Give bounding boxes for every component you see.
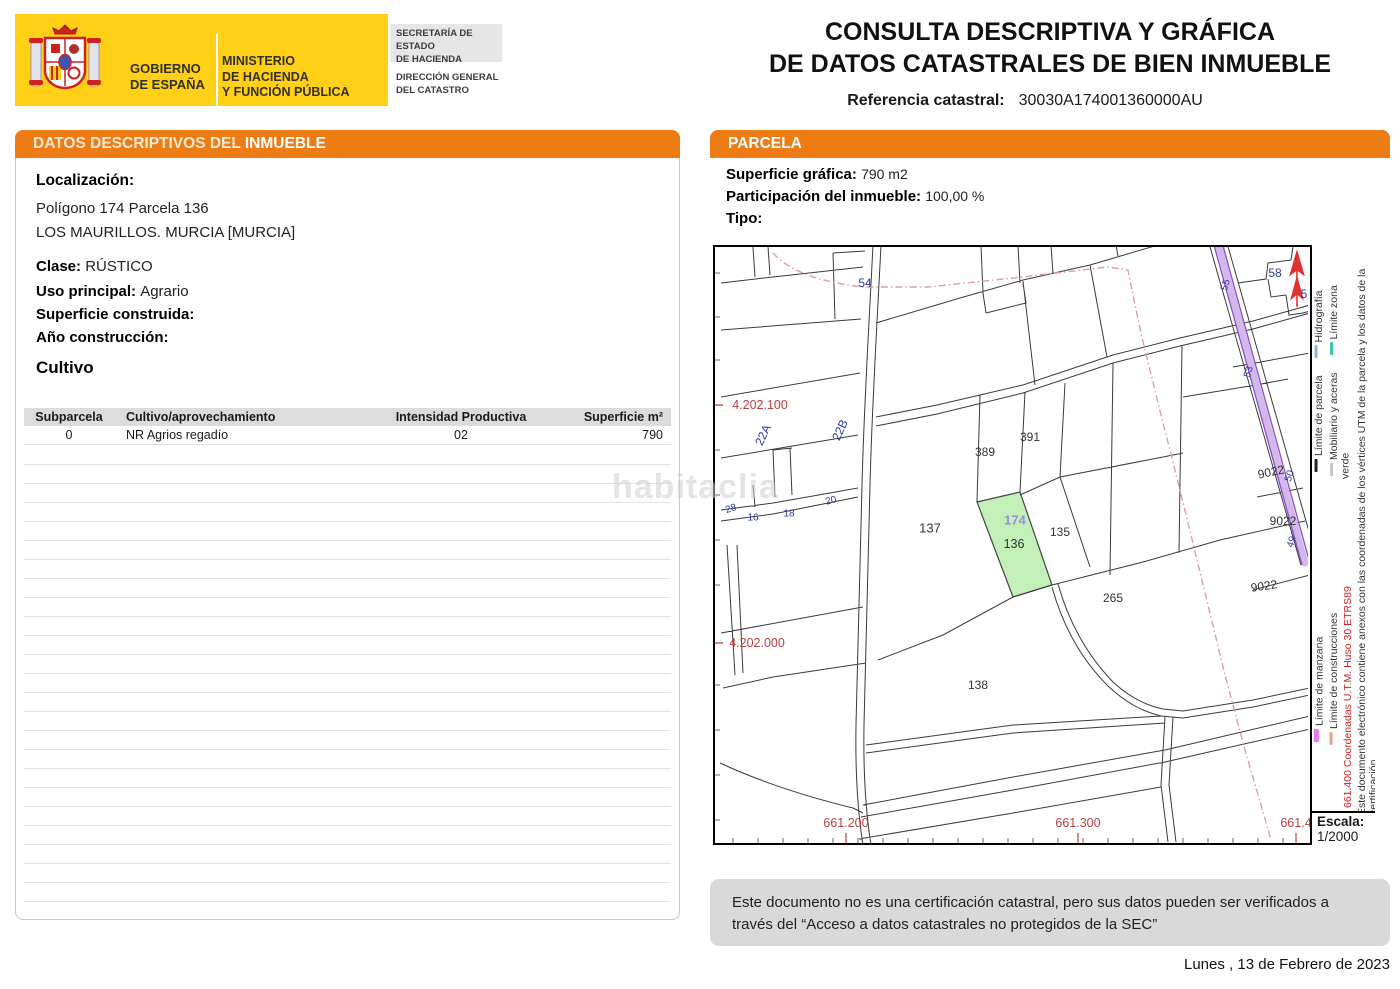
parcel-label-137: 137 bbox=[919, 521, 941, 536]
legend-mobiliario-zonaverde: Mobiliario y acerasLímite zona verde bbox=[1329, 259, 1352, 479]
parcel-label-58: 58 bbox=[1268, 266, 1281, 280]
table-row: 0 NR Agrios regadío 02 790 bbox=[24, 426, 671, 445]
cultivo-title: Cultivo bbox=[36, 358, 94, 378]
cell-cultivo: NR Agrios regadío bbox=[114, 426, 366, 444]
cadastral-map: 54 4.202.100 4.202.000 661.200 661.300 6… bbox=[713, 245, 1375, 845]
uso-field: Uso principal: Agrario bbox=[36, 283, 189, 300]
scale-box: Escala: 1/2000 bbox=[1312, 811, 1375, 845]
inmueble-header-bold: INMUEBLE bbox=[245, 135, 326, 152]
zona-verde-swatch-icon bbox=[1330, 342, 1333, 355]
cultivo-table-header: Subparcela Cultivo/aprovechamiento Inten… bbox=[24, 408, 671, 426]
coord-label-4202000: 4.202.000 bbox=[729, 636, 785, 650]
direccion-text: DIRECCIÓN GENERAL DEL CATASTRO bbox=[396, 72, 506, 98]
cell-intensidad: 02 bbox=[366, 426, 556, 444]
spain-coat-of-arms-icon bbox=[27, 22, 103, 98]
cell-superficie: 790 bbox=[556, 426, 671, 444]
gobierno-text: GOBIERNO DE ESPAÑA bbox=[130, 61, 205, 92]
document-date: Lunes , 13 de Febrero de 2023 bbox=[900, 956, 1390, 973]
col-subparcela: Subparcela bbox=[24, 408, 114, 426]
inmueble-header-prefix: DATOS DESCRIPTIVOS DEL bbox=[33, 135, 241, 152]
anio-construccion-field: Año construcción: bbox=[36, 329, 169, 346]
localizacion-label: Localización: bbox=[36, 172, 134, 190]
parcel-label-389: 389 bbox=[975, 445, 995, 459]
coord-label-661200: 661.200 bbox=[823, 816, 868, 830]
clase-field: Clase: RÚSTICO bbox=[36, 258, 153, 275]
title-line-1: CONSULTA DESCRIPTIVA Y GRÁFICA bbox=[700, 16, 1400, 48]
inmueble-panel-body: Localización: Polígono 174 Parcela 136 L… bbox=[15, 158, 680, 920]
legend-limite-construcciones: Límite de construcciones bbox=[1329, 578, 1341, 748]
map-legend: Límite de parcelaHidrografía Mobiliario … bbox=[1310, 245, 1375, 845]
parcel-label-135: 135 bbox=[1050, 525, 1070, 539]
cultivo-table: Subparcela Cultivo/aprovechamiento Inten… bbox=[24, 408, 671, 445]
localizacion-line1: Polígono 174 Parcela 136 bbox=[36, 200, 209, 217]
coord-label-6614: 661.4 bbox=[1280, 816, 1311, 830]
street-label-16: 16 bbox=[747, 513, 758, 524]
parcel-label-9022b: 9022 bbox=[1270, 514, 1297, 528]
secretaria-text: SECRETARÍA DE ESTADO DE HACIENDA bbox=[396, 28, 496, 66]
government-logo-band: GOBIERNO DE ESPAÑA MINISTERIO DE HACIEND… bbox=[15, 14, 388, 106]
legend-parcela-hidrografia: Límite de parcelaHidrografía bbox=[1314, 275, 1326, 475]
document-title: CONSULTA DESCRIPTIVA Y GRÁFICA DE DATOS … bbox=[700, 16, 1400, 80]
scale-label: Escala: bbox=[1317, 814, 1370, 829]
ministerio-text: MINISTERIO DE HACIENDA Y FUNCIÓN PÚBLICA bbox=[222, 54, 350, 101]
legend-coordenadas-utm: 661.400 Coordenadas U.T.M. Huso 30 ETRS8… bbox=[1343, 563, 1355, 808]
parcel-label-54: 54 bbox=[858, 276, 871, 290]
localizacion-line2: LOS MAURILLOS. MURCIA [MURCIA] bbox=[36, 224, 295, 241]
coord-label-4202100: 4.202.100 bbox=[732, 398, 788, 412]
disclaimer-box: Este documento no es una certificación c… bbox=[710, 879, 1390, 946]
parcel-label-174: 174 bbox=[1004, 513, 1026, 528]
limite-construcciones-swatch-icon bbox=[1330, 732, 1333, 745]
parcel-label-136: 136 bbox=[1004, 537, 1025, 551]
coord-label-661300: 661.300 bbox=[1055, 816, 1100, 830]
superficie-grafica-field: Superficie gráfica: 790 m2 bbox=[726, 166, 908, 183]
limite-parcela-swatch-icon bbox=[1315, 459, 1318, 472]
legend-nota-electronica: Este documento electrónico contiene anex… bbox=[1357, 263, 1375, 815]
participacion-field: Participación del inmueble: 100,00 % bbox=[726, 188, 984, 205]
parcela-panel-body: Superficie gráfica: 790 m2 Participación… bbox=[710, 158, 1390, 238]
scale-value: 1/2000 bbox=[1317, 829, 1358, 844]
superficie-construida-field: Superficie construida: bbox=[36, 306, 194, 323]
parcel-label-5: 5 bbox=[1301, 287, 1308, 301]
cell-subparcela: 0 bbox=[24, 426, 114, 444]
logo-divider bbox=[216, 34, 218, 114]
cadastral-document: GOBIERNO DE ESPAÑA MINISTERIO DE HACIEND… bbox=[0, 0, 1400, 989]
parcela-header-text: PARCELA bbox=[728, 135, 802, 152]
referencia-label: Referencia catastral: bbox=[847, 92, 1004, 109]
parcel-label-138: 138 bbox=[968, 678, 988, 692]
secretaria-box: SECRETARÍA DE ESTADO DE HACIENDA bbox=[390, 24, 502, 62]
hidrografia-swatch-icon bbox=[1315, 345, 1318, 358]
col-cultivo: Cultivo/aprovechamiento bbox=[114, 408, 366, 426]
mobiliario-swatch-icon bbox=[1330, 463, 1333, 476]
parcela-panel-header: PARCELA bbox=[710, 130, 1390, 158]
col-superficie: Superficie m² bbox=[556, 408, 671, 426]
referencia-catastral: Referencia catastral:30030A174001360000A… bbox=[695, 92, 1355, 110]
parcel-map-drawing bbox=[713, 245, 1375, 845]
tipo-field: Tipo: bbox=[726, 210, 762, 227]
parcel-label-265: 265 bbox=[1103, 591, 1123, 605]
col-intensidad: Intensidad Productiva bbox=[366, 408, 556, 426]
parcel-label-391: 391 bbox=[1020, 430, 1040, 444]
limite-manzana-swatch-icon bbox=[1314, 729, 1319, 742]
title-line-2: DE DATOS CATASTRALES DE BIEN INMUEBLE bbox=[700, 48, 1400, 80]
empty-table-rows bbox=[24, 446, 671, 914]
referencia-value: 30030A174001360000AU bbox=[1019, 92, 1203, 109]
legend-limite-manzana: Límite de manzana bbox=[1314, 590, 1326, 745]
inmueble-panel-header: DATOS DESCRIPTIVOS DEL INMUEBLE bbox=[15, 130, 680, 158]
street-label-18: 18 bbox=[783, 509, 794, 520]
